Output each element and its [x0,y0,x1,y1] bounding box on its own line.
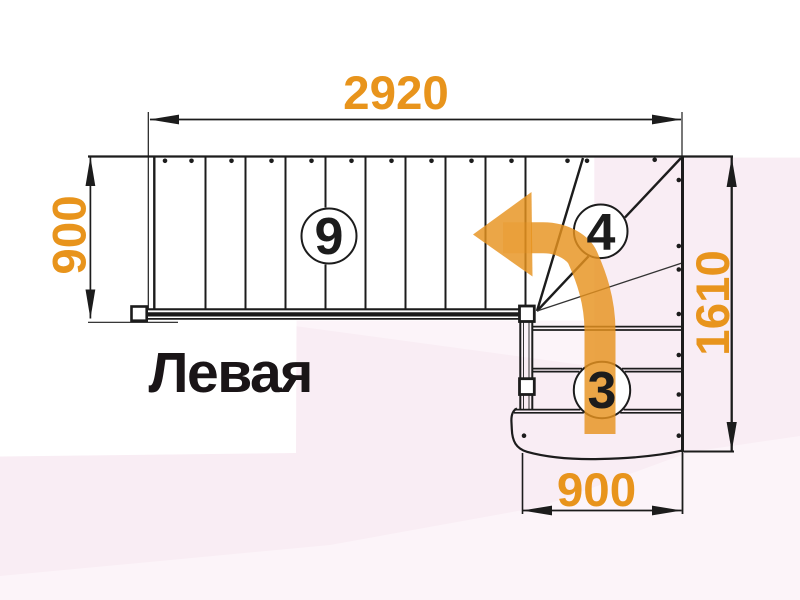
svg-text:3: 3 [588,362,617,420]
svg-text:2920: 2920 [343,67,449,120]
svg-text:Левая: Левая [149,341,312,405]
svg-text:1610: 1610 [687,250,740,356]
svg-text:4: 4 [587,204,616,262]
svg-text:9: 9 [315,208,344,266]
svg-text:900: 900 [557,464,636,517]
svg-text:900: 900 [44,195,97,274]
